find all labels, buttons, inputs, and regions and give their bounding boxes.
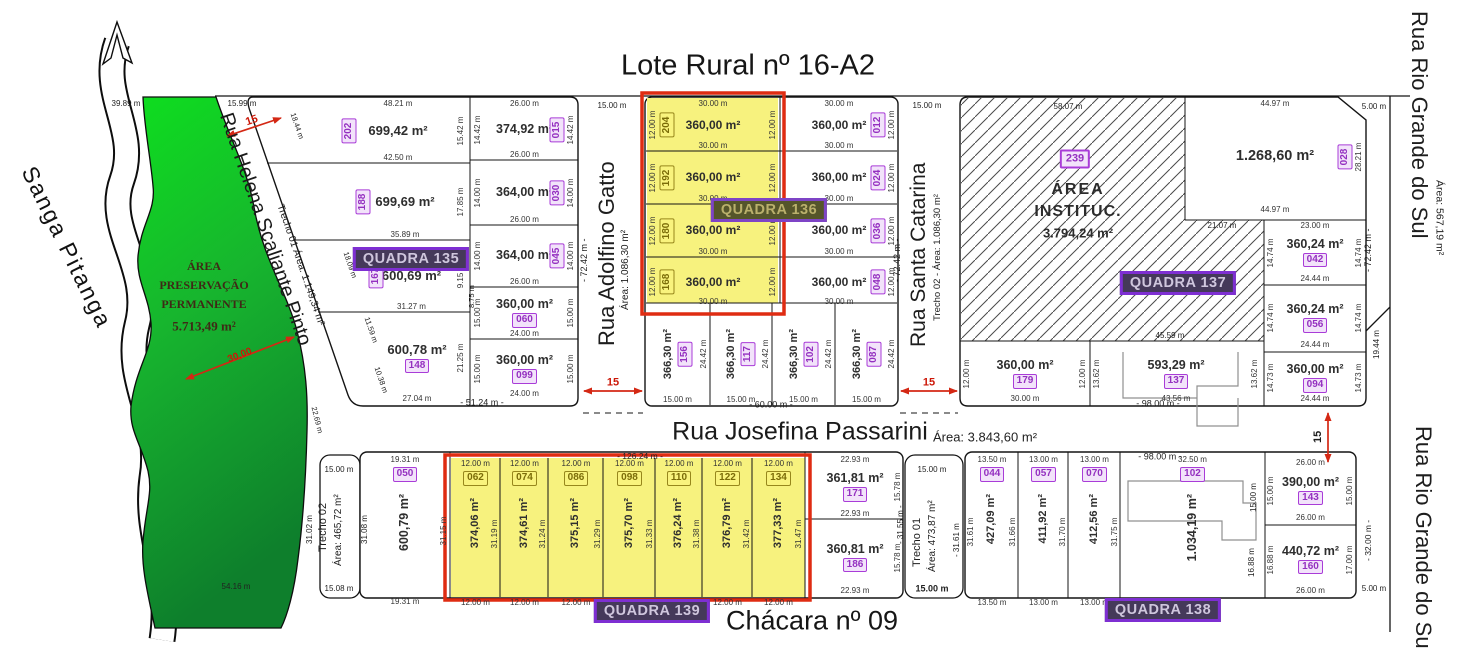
lot-dimension-left: 15.00 m <box>1267 476 1275 505</box>
lot-074: 374,61 m²07412.00 m12.00 m31.24 m <box>501 459 548 608</box>
lot-dimension-right: 14.42 m <box>567 115 575 144</box>
street-santa-catarina-length: - 72.42 m - <box>893 200 902 320</box>
lot-area: 1.034,19 m² <box>1186 494 1199 561</box>
street-rio-grande-name-top: Rua Rio Grande do Sul <box>1408 12 1430 237</box>
dim-500-bottom: 5.00 m <box>1362 585 1386 593</box>
lot-dimension-left: 31.61 m <box>967 517 975 546</box>
lot-dimension-right: 14.00 m <box>567 242 575 271</box>
quadra-138-badge: QUADRA 138 <box>1105 598 1221 622</box>
quadra-136-badge: QUADRA 136 <box>711 198 827 222</box>
lot-area: 374,61 m² <box>519 498 531 548</box>
lot-dimension-right: 31.70 m <box>1059 517 1067 546</box>
page-title: Lote Rural nº 16-A2 <box>621 52 875 81</box>
lot-dimension-right: 31.33 m <box>646 519 654 548</box>
lot-137: 593,29 m²13743.56 m13.62 m13.62 m <box>1092 344 1260 404</box>
lot-number-badge: 057 <box>1031 467 1056 482</box>
lot-number-badge: 062 <box>463 471 488 486</box>
lot-area: 366,30 m² <box>663 329 675 379</box>
lot-dimension-bottom: 30.00 m <box>825 142 854 150</box>
street-adolfino-name: Rua Adolfino Gatto <box>596 146 618 361</box>
lot-202: 699,42 m²20248.21 m42.50 m15.42 m <box>330 99 466 163</box>
lot-area: 364,00 m² <box>496 186 553 199</box>
lot-186: 360,81 m²18622.93 m15.78 m <box>807 519 903 596</box>
lot-number-badge: 160 <box>1298 560 1323 575</box>
lot-dimension-top: 19.31 m <box>391 456 420 464</box>
lot-171: 361,81 m²17122.93 m22.93 m15.78 m <box>807 455 903 519</box>
lot-dimension-top: 22.93 m <box>841 456 870 464</box>
lot-dimension-right: 31.42 m <box>743 519 751 548</box>
street-width-15-adolfino: 15 <box>607 378 619 389</box>
lot-area: 360,00 m² <box>686 171 741 184</box>
lot-dimension-left: 12.00 m <box>649 163 657 192</box>
lot-192: 360,00 m²19230.00 m12.00 m12.00 m <box>648 151 778 204</box>
street-adolfino-width: 15.00 m <box>598 102 627 110</box>
lot-dimension-bottom: 12.00 m <box>510 599 539 607</box>
lot-dimension-right: 24.42 m <box>700 340 708 369</box>
lot-dimension-bottom: 13.50 m <box>978 599 1007 607</box>
dim-500-top: 5.00 m <box>1362 103 1386 111</box>
quadra-139-badge: QUADRA 139 <box>594 599 710 623</box>
trecho02-name: Trecho 02 <box>318 480 329 575</box>
lot-dimension-right: 14.74 m <box>1355 238 1363 267</box>
lot-dimension-left: 14.73 m <box>1267 364 1275 393</box>
lot-dimension-left: 14.74 m <box>1267 304 1275 333</box>
lot-area: 699,69 m² <box>375 195 434 209</box>
lot-area: 1.268,60 m² <box>1236 149 1314 164</box>
lot-179: 360,00 m²17930.00 m12.00 m12.00 m <box>962 344 1088 404</box>
street-adolfino-area: Área: 1.086,30 m² <box>621 185 631 355</box>
lot-number-badge: 188 <box>356 189 371 214</box>
dim-4559: 45.59 m <box>1156 332 1185 340</box>
lot-number-badge: 102 <box>804 342 819 367</box>
dim-1500-right: 15.00 m <box>1250 465 1258 530</box>
lot-098: 375,70 m²09812.00 m12.00 m31.33 m <box>604 459 655 608</box>
lot-dimension-right: 24.42 m <box>762 340 770 369</box>
lot-number-badge: 036 <box>871 218 886 243</box>
lot-dimension-right: 17.85 m <box>457 187 465 216</box>
street-adolfino-length: - 72.42 m - <box>580 200 589 320</box>
lot-area: 593,29 m² <box>1148 359 1205 372</box>
lot-area: 600,78 m² <box>387 343 446 357</box>
lot-dimension-bottom: 24.44 m <box>1301 395 1330 403</box>
preservation-line3: PERMANENTE <box>161 298 246 310</box>
lot-area: 699,42 m² <box>368 124 427 138</box>
lot-area: 376,79 m² <box>722 498 734 548</box>
trecho02-right-dim: 31.08 m <box>361 495 369 565</box>
lot-099: 360,00 m²09924.00 m15.00 m15.00 m <box>473 339 576 399</box>
institutional-area: 3.794,24 m² <box>1043 227 1113 240</box>
trecho02-left-dim: 31.02 m <box>306 495 314 565</box>
lot-dimension-bottom: 27.04 m <box>403 395 432 403</box>
lot-056: 360,24 m²05624.44 m14.74 m14.74 m <box>1266 286 1364 350</box>
lot-122: 376,79 m²12212.00 m12.00 m31.42 m <box>703 459 752 608</box>
lot-dimension-right: 31.47 m <box>795 519 803 548</box>
total-12624: - 126.24 m - <box>617 452 663 461</box>
lot-area: 411,92 m² <box>1038 494 1050 544</box>
preservation-area: 5.713,49 m² <box>172 320 235 333</box>
trecho01-top-dim: 15.00 m <box>918 466 947 474</box>
lot-number-badge: 048 <box>871 270 886 295</box>
trecho01-right-dim: - 31.61 m <box>953 500 961 580</box>
lot-dimension-top: 44.97 m <box>1261 100 1290 108</box>
lot-number-badge: 137 <box>1164 374 1189 389</box>
lot-area: 360,00 m² <box>997 359 1054 372</box>
lot-168: 360,00 m²16830.00 m12.00 m12.00 m <box>648 257 778 307</box>
lot-156: 366,30 m²15615.00 m24.42 m <box>646 303 709 405</box>
lot-dimension-right: 14.73 m <box>1355 364 1363 393</box>
lot-number-badge: 202 <box>342 119 357 144</box>
lot-area: 364,00 m² <box>496 249 553 262</box>
lot-dimension-right: 15.00 m <box>567 355 575 384</box>
lot-dimension-bottom: 30.00 m <box>1011 395 1040 403</box>
lot-area: 360,24 m² <box>1287 238 1344 251</box>
lot-dimension-bottom: 22.93 m <box>841 510 870 518</box>
lot-number-badge: 134 <box>766 471 791 486</box>
lot-dimension-right: 12.00 m <box>769 163 777 192</box>
street-width-15-santa-catarina: 15 <box>923 378 935 389</box>
preservation-line2: PRESERVAÇÃO <box>159 279 248 291</box>
lot-area: 360,00 m² <box>812 171 867 184</box>
lot-area: 366,30 m² <box>852 329 864 379</box>
lot-area: 360,00 m² <box>1287 363 1344 376</box>
lot-number-badge: 099 <box>512 369 537 384</box>
lot-042: 360,24 m²04223.00 m24.44 m14.74 m14.74 m <box>1266 221 1364 284</box>
lot-dimension-right: 12.00 m <box>888 111 896 140</box>
total-9800-bottom: - 98.00 m - <box>1138 453 1182 462</box>
lot-dimension-bottom: 12.00 m <box>562 599 591 607</box>
lot-number-badge: 087 <box>867 342 882 367</box>
lot-134: 377,33 m²13412.00 m12.00 m31.47 m <box>753 459 804 608</box>
lot-number-badge: 122 <box>715 471 740 486</box>
lot-dimension-bottom: 24.44 m <box>1301 275 1330 283</box>
lot-area: 375,70 m² <box>624 498 636 548</box>
trecho02-top-dim: 15.00 m <box>325 466 354 474</box>
lot-dimension-top: 26.00 m <box>1296 459 1325 467</box>
lot-number-badge: 179 <box>1013 374 1038 389</box>
lot-number-badge: 028 <box>1338 145 1353 170</box>
lot-dimension-left: 12.00 m <box>649 268 657 297</box>
lot-area: 360,81 m² <box>827 543 884 556</box>
lot-area: 360,00 m² <box>686 119 741 132</box>
dim-5807: 58.07 m <box>1054 103 1083 111</box>
lot-dimension-bottom: 19.31 m <box>391 598 420 606</box>
lot-062: 374,06 m²06212.00 m12.00 m31.19 m <box>451 459 500 608</box>
lot-dimension-left: 12.00 m <box>649 216 657 245</box>
lot-dimension-left: 14.42 m <box>474 115 482 144</box>
lot-dimension-bottom: 26.00 m <box>510 151 539 159</box>
lot-dimension-top: 12.00 m <box>510 460 539 468</box>
lot-dimension-right: 31.66 m <box>1009 517 1017 546</box>
lot-number-badge: 070 <box>1082 467 1107 482</box>
lot-dimension-bottom: 22.93 m <box>841 587 870 595</box>
preservation-line1: ÁREA <box>187 260 221 272</box>
lot-dimension-right: 24.42 m <box>825 340 833 369</box>
lot-110: 376,24 m²11012.00 m12.00 m31.38 m <box>656 459 702 608</box>
lot-number-badge: 204 <box>660 113 675 138</box>
lot-dimension-top: 12.00 m <box>713 460 742 468</box>
lot-060: 360,00 m²06024.00 m15.00 m15.00 m <box>473 287 576 339</box>
lot-dimension-right: 31.29 m <box>594 519 602 548</box>
lot-048: 360,00 m²04830.00 m12.00 m <box>781 257 897 307</box>
lot-dimension-bottom: 30.00 m <box>699 142 728 150</box>
lot-dimension-top: 30.00 m <box>699 100 728 108</box>
lot-area: 375,15 m² <box>570 498 582 548</box>
lot-117: 366,30 m²11715.00 m24.42 m <box>711 303 771 405</box>
lot-dimension-top: 48.21 m <box>384 100 413 108</box>
lot-dimension-right: 31.19 m <box>491 519 499 548</box>
lot-dimension-bottom: 13.00 m <box>1029 599 1058 607</box>
lot-number-badge: 192 <box>660 165 675 190</box>
lot-015: 374,92 m²01526.00 m26.00 m14.42 m14.42 m <box>473 99 576 160</box>
lot-087: 366,30 m²08715.00 m24.42 m <box>836 303 897 405</box>
street-santa-catarina-detail: Trecho 02 - Área: 1.086,30 m² <box>933 165 943 350</box>
lot-dimension-right: 31.38 m <box>693 519 701 548</box>
total-3200: - 32.00 m - <box>1364 505 1373 575</box>
lot-dimension-right: 24.42 m <box>888 340 896 369</box>
lot-number-badge: 102 <box>1180 467 1205 482</box>
lot-area: 412,56 m² <box>1089 494 1101 544</box>
street-josefina-area: Área: 3.843,60 m² <box>933 431 1037 444</box>
lot-dimension-right: 12.00 m <box>769 268 777 297</box>
lot-number-badge: 042 <box>1303 253 1328 268</box>
lot-dimension-bottom: 24.00 m <box>510 330 539 338</box>
trecho02-bottom-dim: 15.08 m <box>325 585 354 593</box>
lot-area: 366,30 m² <box>789 329 801 379</box>
lot-number-badge: 117 <box>741 342 756 366</box>
trecho01-bottom-dim: 15.00 m <box>915 585 948 594</box>
lot-dimension-right: 14.74 m <box>1355 304 1363 333</box>
lot-dimension-top: 12.00 m <box>562 460 591 468</box>
lot-number-badge: 148 <box>405 359 430 374</box>
lot-dimension-bottom: 35.89 m <box>391 231 420 239</box>
total-6000: - 60.00 m - <box>749 401 793 410</box>
lot-number-badge: 074 <box>512 471 537 486</box>
lot-area: 427,09 m² <box>986 494 998 544</box>
trecho01-area: Área: 473,87 m² <box>928 480 938 592</box>
lot-number-badge: 024 <box>871 165 886 190</box>
lot-number-badge: 015 <box>550 117 565 142</box>
lot-dimension-left: 13.62 m <box>1093 360 1101 389</box>
lot-dimension-top: 12.00 m <box>665 460 694 468</box>
lot-number-badge: 012 <box>871 113 886 138</box>
lot-area: 360,00 m² <box>812 119 867 132</box>
lot-area: 360,00 m² <box>496 298 553 311</box>
lot-dimension-right: 13.62 m <box>1251 360 1259 389</box>
dim-875: 8.75 m <box>468 272 476 322</box>
lot-number-badge: 180 <box>660 218 675 243</box>
dim-green-top: 39.89 m <box>112 100 141 108</box>
lot-area: 440,72 m² <box>1282 545 1339 558</box>
street-rio-grande-name-bottom: Rua Rio Grande do Sul <box>1412 440 1434 640</box>
lot-dimension-top: 12.00 m <box>615 460 644 468</box>
lot-number-badge: 030 <box>550 180 565 205</box>
street-josefina-name: Rua Josefina Passarini <box>672 420 928 445</box>
lot-dimension-bottom: 31.27 m <box>397 303 426 311</box>
lot-028: 1.268,60 m²02844.97 m44.97 m28.21 m <box>1186 99 1364 215</box>
lot-number-badge: 050 <box>393 467 418 482</box>
lot-area: 374,92 m² <box>496 123 553 136</box>
trecho01-name: Trecho 01 <box>912 495 923 590</box>
lot-dimension-bottom: 26.00 m <box>510 278 539 286</box>
lot-dimension-bottom: 15.00 m <box>852 396 881 404</box>
lot-number-badge: 143 <box>1298 491 1323 506</box>
lot-area: 361,81 m² <box>827 472 884 485</box>
lot-102-north: 366,30 m²10215.00 m24.42 m <box>773 303 834 405</box>
lot-number-badge: 168 <box>660 270 675 295</box>
lot-dimension-left: 16.88 m <box>1267 545 1275 574</box>
dim-3155: - 31.55 m - <box>897 485 905 565</box>
dim-2107: 21.07 m <box>1208 222 1237 230</box>
dim-1944: 19.44 m <box>1373 315 1381 375</box>
lot-number-badge: 110 <box>667 471 691 486</box>
lot-number-badge: 098 <box>617 471 642 486</box>
lot-dimension-right: 31.24 m <box>539 519 547 548</box>
lot-dimension-top: 32.50 m <box>1178 456 1207 464</box>
lot-area: 600,79 m² <box>398 494 411 551</box>
lot-102-south: 1.034,19 m²10232.50 m32.50 m <box>1121 455 1264 608</box>
lot-number-badge: 045 <box>550 244 565 269</box>
lot-070: 412,56 m²07013.00 m13.00 m31.75 m <box>1069 455 1120 608</box>
lot-dimension-left: 14.00 m <box>474 178 482 207</box>
lot-number-badge: 056 <box>1303 318 1328 333</box>
street-rio-grande-area: Área: 567,19 m² <box>1434 148 1445 288</box>
institutional-line1: ÁREA <box>1051 182 1104 198</box>
lot-dimension-right: 12.00 m <box>769 111 777 140</box>
street-santa-catarina-width: 15.00 m <box>913 102 942 110</box>
lot-dimension-right: 12.00 m <box>888 163 896 192</box>
dim-1688-right: 16.88 m <box>1248 530 1256 595</box>
lot-dimension-right: 21.25 m <box>457 344 465 373</box>
dim-green-bottom: 54.16 m <box>222 583 251 591</box>
lot-number-badge: 044 <box>980 467 1005 482</box>
lot-030: 364,00 m²03026.00 m14.00 m14.00 m <box>473 160 576 225</box>
lot-dimension-bottom: 44.97 m <box>1261 206 1290 214</box>
lot-024: 360,00 m²02430.00 m12.00 m <box>781 151 897 204</box>
institutional-line2: INSTITUC. <box>1034 204 1121 220</box>
lot-number-badge: 086 <box>564 471 589 486</box>
lot-dimension-left: 14.00 m <box>474 242 482 271</box>
lot-dimension-top: 13.00 m <box>1080 456 1109 464</box>
lot-dimension-left: 15.00 m <box>474 355 482 384</box>
lot-dimension-bottom: 30.00 m <box>825 248 854 256</box>
lot-188: 699,69 m²18835.89 m17.85 m <box>344 163 466 240</box>
lot-dimension-bottom: 24.00 m <box>510 390 539 398</box>
lot-dimension-right: 14.00 m <box>567 178 575 207</box>
total-5124: - 51.24 m - <box>460 399 504 408</box>
street-width-15-right: 15 <box>1313 422 1324 452</box>
lot-dimension-bottom: 26.00 m <box>1296 514 1325 522</box>
lot-dimension-bottom: 15.00 m <box>789 396 818 404</box>
lot-dimension-right: 15.42 m <box>457 117 465 146</box>
lot-dimension-top: 26.00 m <box>510 100 539 108</box>
quadra-137-badge: QUADRA 137 <box>1120 271 1236 295</box>
lot-area: 376,24 m² <box>673 498 685 548</box>
lot-dimension-left: 12.00 m <box>649 111 657 140</box>
lot-dimension-left: 12.00 m <box>963 360 971 389</box>
lot-area: 600,69 m² <box>382 269 441 283</box>
dim-7242-right: - 72.42 m - <box>1364 205 1373 295</box>
lot-050: 600,79 m²05019.31 m19.31 m31.15 m <box>361 455 449 607</box>
lot-160: 440,72 m²16026.00 m16.88 m17.00 m <box>1266 523 1355 596</box>
lot-057: 411,92 m²05713.00 m13.00 m31.70 m <box>1019 455 1068 608</box>
lot-area: 377,33 m² <box>773 498 785 548</box>
lot-number-badge: 060 <box>512 313 537 328</box>
quadra-135-badge: QUADRA 135 <box>353 247 469 271</box>
lot-area: 360,00 m² <box>812 276 867 289</box>
lot-094: 360,00 m²09424.44 m14.73 m14.73 m <box>1266 352 1364 404</box>
lot-dimension-right: 17.00 m <box>1346 545 1354 574</box>
lot-dimension-top: 30.00 m <box>825 100 854 108</box>
lot-dimension-right: 31.75 m <box>1111 517 1119 546</box>
lot-dimension-bottom: 26.00 m <box>510 216 539 224</box>
lot-dimension-right: 28.21 m <box>1355 143 1363 172</box>
lot-143: 390,00 m²14326.00 m26.00 m15.00 m15.00 m <box>1266 458 1355 523</box>
lot-number-badge: 156 <box>678 342 693 367</box>
lot-area: 360,00 m² <box>812 224 867 237</box>
lot-dimension-left: 14.74 m <box>1267 238 1275 267</box>
chacara-label: Chácara nº 09 <box>726 608 898 635</box>
lot-dimension-top: 13.50 m <box>978 456 1007 464</box>
lot-number-badge: 171 <box>843 487 868 502</box>
dim-1599: 15.99 m <box>228 100 257 108</box>
lot-204: 360,00 m²20430.00 m30.00 m12.00 m12.00 m <box>648 99 778 151</box>
lot-area: 360,00 m² <box>496 354 553 367</box>
lot-area: 390,00 m² <box>1282 476 1339 489</box>
total-9800-top: - 98.00 m - <box>1136 400 1180 409</box>
lot-dimension-bottom: 12.00 m <box>461 599 490 607</box>
lot-number-badge: 186 <box>843 558 868 573</box>
subdivision-plat-map: Lote Rural nº 16-A2 Chácara nº 09 Sanga … <box>0 0 1462 650</box>
lot-dimension-bottom: 24.44 m <box>1301 341 1330 349</box>
institutional-lot-badge: 239 <box>1060 150 1090 169</box>
lot-area: 360,24 m² <box>1287 303 1344 316</box>
lot-045: 364,00 m²04526.00 m14.00 m14.00 m <box>473 225 576 287</box>
lot-086: 375,15 m²08612.00 m12.00 m31.29 m <box>549 459 603 608</box>
lot-dimension-bottom: 26.00 m <box>1296 587 1325 595</box>
lot-dimension-right: 15.00 m <box>567 299 575 328</box>
trecho02-area: Área: 465,72 m² <box>334 475 344 585</box>
lot-area: 366,30 m² <box>726 329 738 379</box>
lot-area: 374,06 m² <box>470 498 482 548</box>
lot-area: 360,00 m² <box>686 276 741 289</box>
lot-dimension-bottom: 30.00 m <box>699 248 728 256</box>
lot-044: 427,09 m²04413.50 m13.50 m31.61 m31.66 m <box>966 455 1018 608</box>
street-santa-catarina-name: Rua Santa Catarina <box>908 152 929 357</box>
lot-dimension-top: 23.00 m <box>1301 222 1330 230</box>
lot-dimension-right: 15.00 m <box>1346 476 1354 505</box>
lot-number-badge: 094 <box>1303 378 1328 393</box>
lot-area: 360,00 m² <box>686 224 741 237</box>
lot-dimension-top: 13.00 m <box>1029 456 1058 464</box>
lot-012: 360,00 m²01230.00 m30.00 m12.00 m <box>781 99 897 151</box>
lot-dimension-top: 12.00 m <box>764 460 793 468</box>
lot-dimension-right: 12.00 m <box>1079 360 1087 389</box>
lot-dimension-right: 31.15 m <box>440 517 448 546</box>
lot-dimension-bottom: 15.00 m <box>663 396 692 404</box>
lot-dimension-bottom: 42.50 m <box>384 154 413 162</box>
lot-dimension-top: 12.00 m <box>461 460 490 468</box>
lot-dimension-bottom: 30.00 m <box>825 195 854 203</box>
